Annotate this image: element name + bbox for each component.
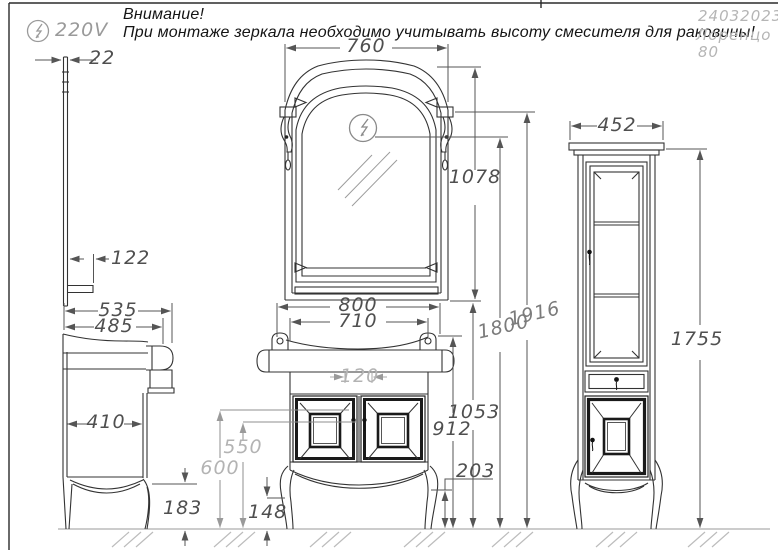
- technical-drawing-page: Внимание! При монтаже зеркала необходимо…: [0, 0, 778, 550]
- dim-depth-counter: 485: [94, 317, 133, 336]
- voltage-label: 220V: [55, 19, 108, 41]
- dim-mirror-width: 760: [346, 37, 385, 56]
- dim-122-lines: [70, 254, 109, 283]
- vanity-door-right: [361, 396, 425, 462]
- dim-side-apron-height: 203: [456, 462, 495, 481]
- drawing-canvas: [0, 0, 778, 550]
- front-view-mirror: [285, 60, 448, 300]
- dim-front-apron-height: 148: [248, 503, 287, 522]
- drawing-date: 24032023: [698, 7, 778, 25]
- tall-cabinet: [569, 143, 664, 529]
- vanity-door-left: [293, 396, 357, 462]
- mirror-lamp-right: [437, 107, 453, 170]
- page-border: [9, 0, 778, 550]
- dim-height-600: 600: [200, 459, 239, 478]
- dim-cabinet-width: 452: [597, 116, 636, 135]
- dim-vanity-body-width: 710: [338, 312, 377, 331]
- dim-mirror-bottom-height: 1053: [448, 403, 500, 422]
- model-size: 80: [698, 43, 719, 61]
- dim-body-depth: 410: [86, 413, 125, 432]
- mirror-outlet-icon: [350, 115, 377, 142]
- mirror-glass-hatch: [338, 152, 397, 206]
- model-name: Лоренцо: [696, 26, 771, 44]
- dim-mirror-thickness: 22: [89, 49, 115, 68]
- dim-drain-gap: 120: [340, 367, 379, 386]
- dim-height-550: 550: [223, 438, 262, 457]
- power-icon: [28, 21, 49, 42]
- warning-title: Внимание!: [123, 6, 204, 24]
- warning-text: При монтаже зеркала необходимо учитывать…: [123, 24, 755, 42]
- floor-line: [58, 529, 770, 547]
- mirror-lamp-left: [280, 107, 296, 170]
- cabinet-lower-door: [585, 396, 648, 477]
- dim-cabinet-height: 1755: [671, 330, 723, 349]
- dim-shelf-depth: 122: [111, 249, 150, 268]
- dim-leg-height: 183: [163, 499, 202, 518]
- dim-mirror-height: 1078: [449, 168, 501, 187]
- side-view-mirror-profile: [62, 57, 93, 306]
